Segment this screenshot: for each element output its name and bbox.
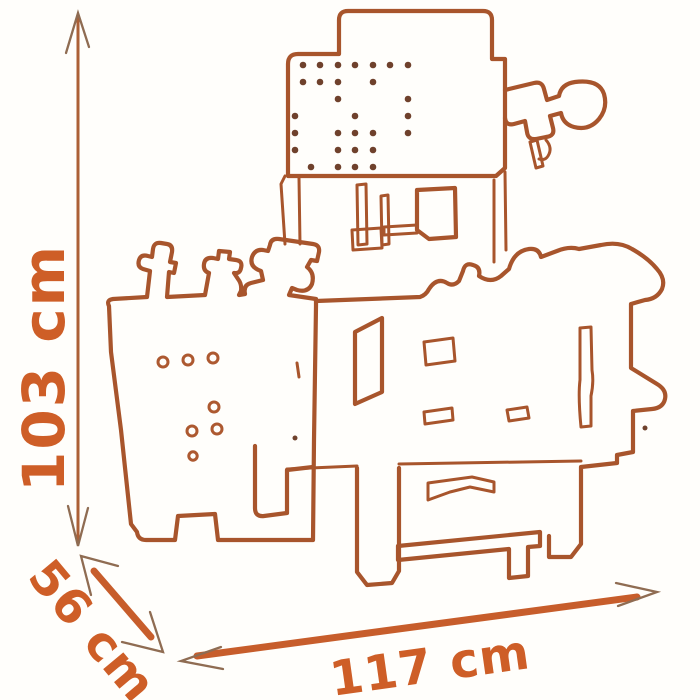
- drill-outline: [505, 82, 605, 140]
- rear-left-leg: [255, 446, 313, 516]
- hole-rect-3: [507, 407, 529, 421]
- screwdriver-slot: [579, 327, 593, 427]
- shelf-wedge: [428, 477, 494, 500]
- drill-bit: [530, 140, 543, 168]
- hanging-strip-2: [381, 195, 389, 245]
- hole-rect-1: [424, 338, 455, 365]
- apron-edge-right: [399, 461, 581, 464]
- hanging-strip-1: [357, 184, 367, 245]
- height-dimension-label: 103 cm: [10, 244, 78, 492]
- panel-left-column: [281, 176, 300, 244]
- bottom-rail: [398, 532, 540, 578]
- vice-square-hole: [417, 188, 456, 239]
- center-leg: [357, 468, 399, 585]
- panel-right-column: [494, 172, 506, 262]
- small-tick: [297, 363, 299, 377]
- pegboard-panel-outline: [288, 11, 505, 176]
- product-dimension-diagram: 103 cm 56 cm 117 cm: [0, 0, 700, 700]
- side-panel: [355, 318, 382, 404]
- workbench-outline-drawing: [0, 0, 700, 700]
- workbench-outline: [108, 11, 665, 585]
- hole-rect-2: [424, 408, 453, 424]
- cabinet-holes: [158, 353, 222, 460]
